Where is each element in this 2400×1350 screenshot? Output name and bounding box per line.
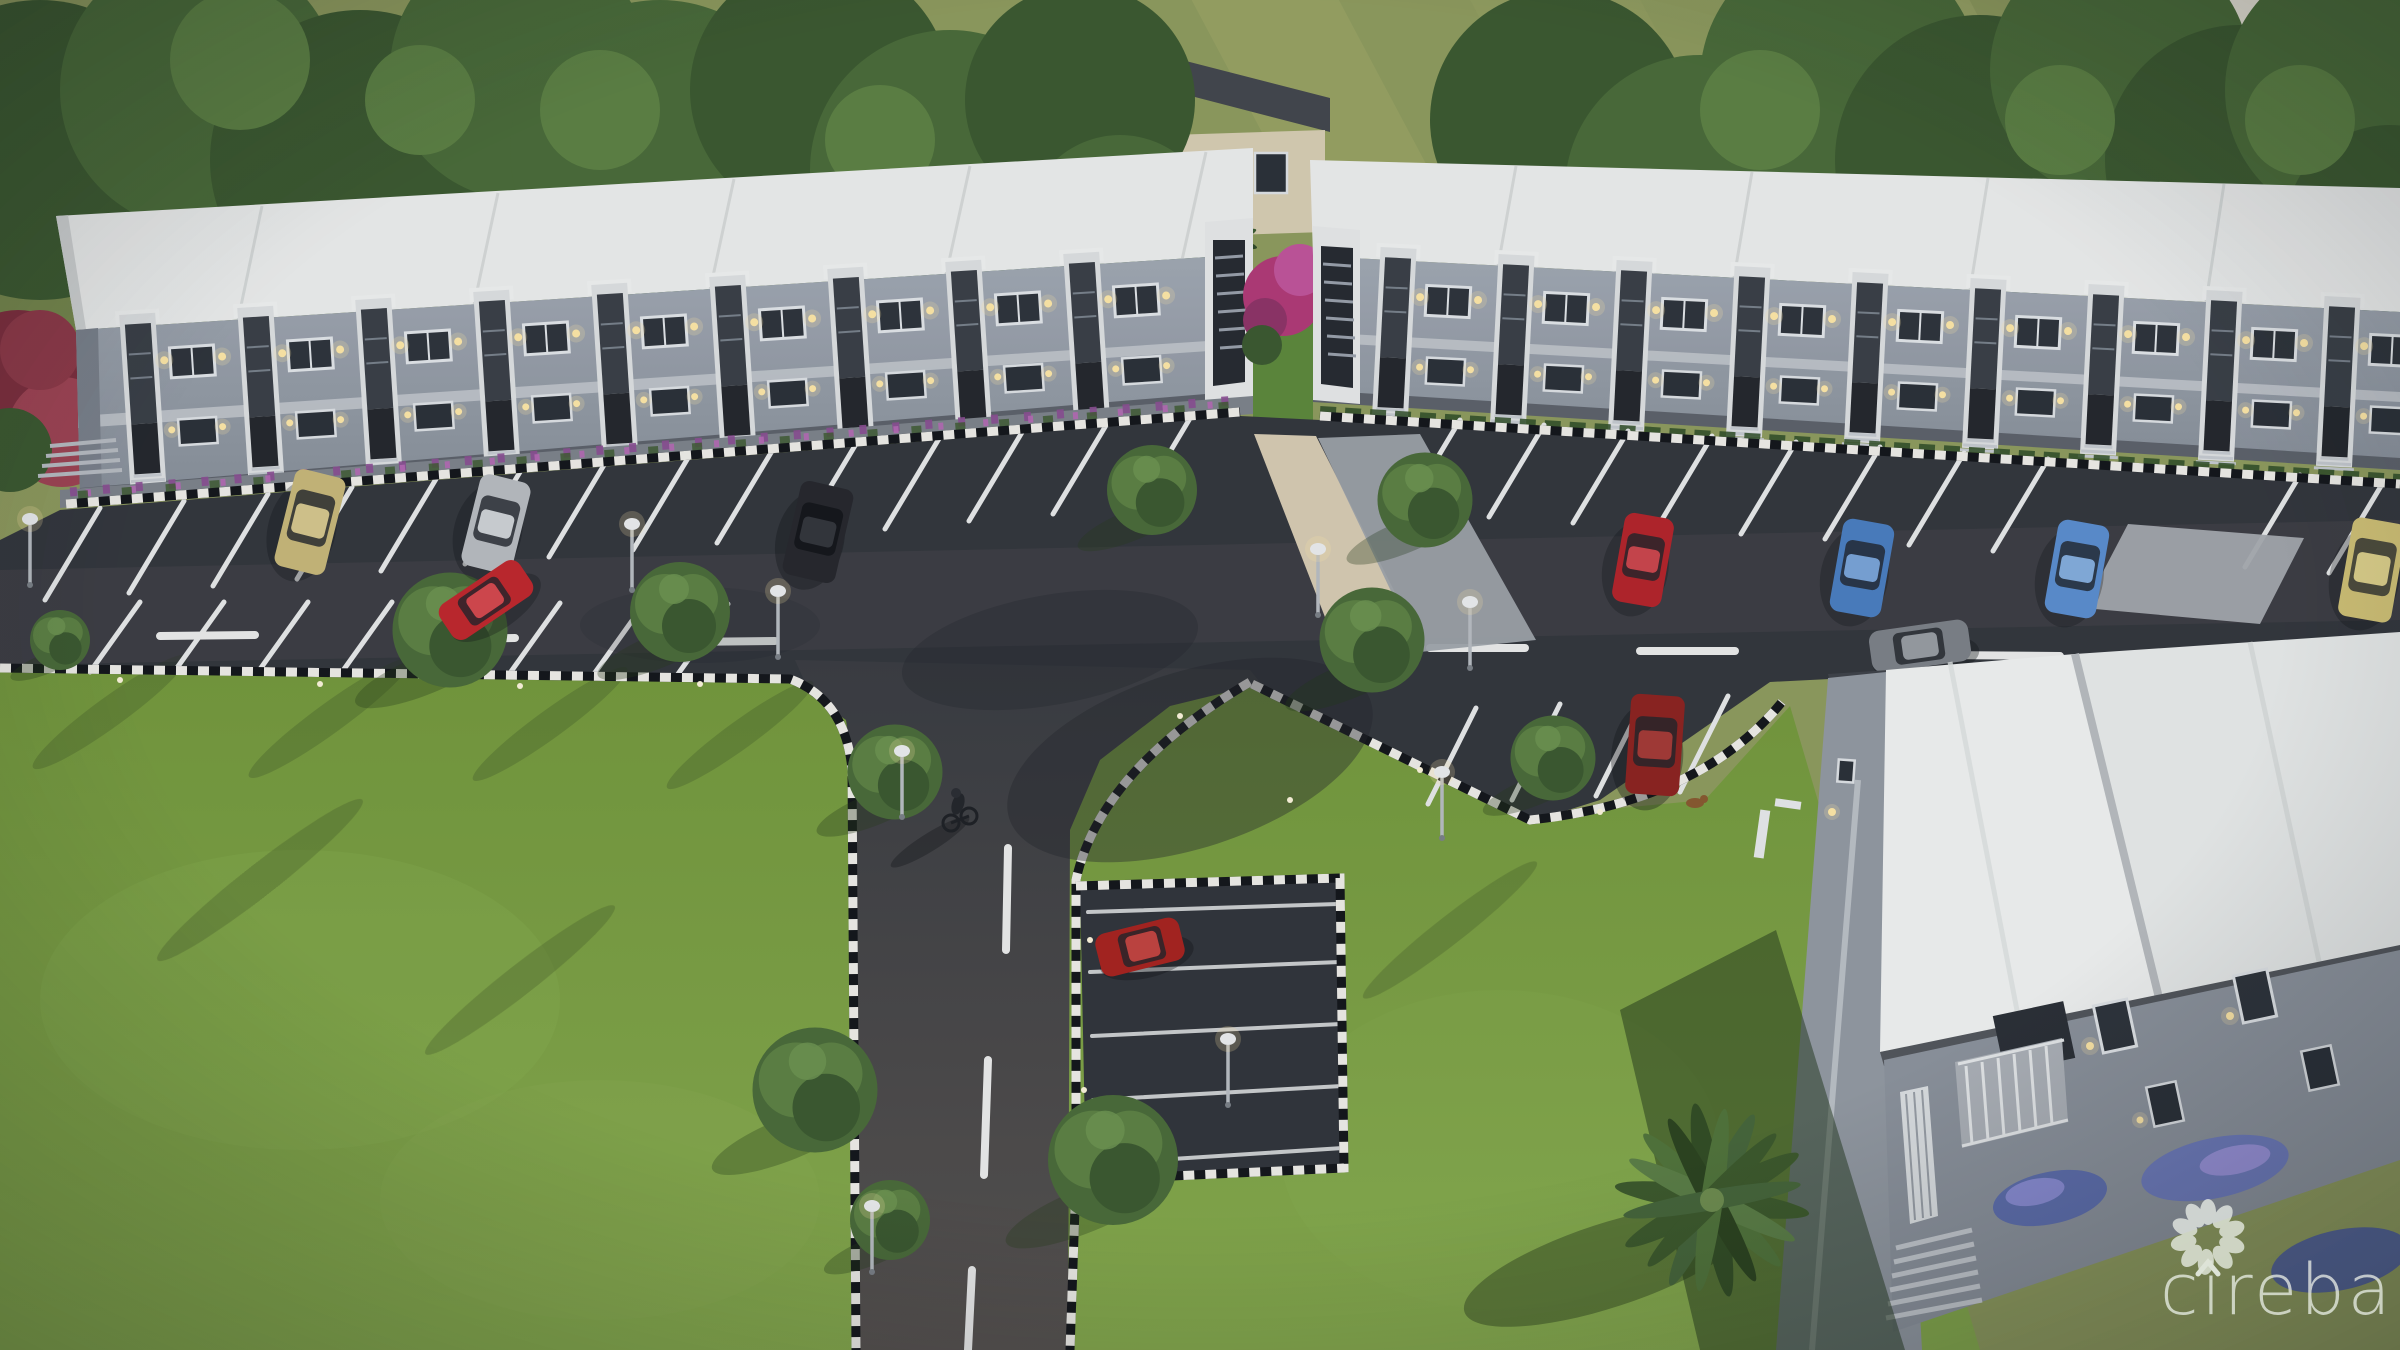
rendering-canvas: cireba	[0, 0, 2400, 1350]
cireba-wordmark: cireba	[2160, 1249, 2394, 1331]
vignette	[0, 0, 2400, 1350]
property-rendering: cireba	[0, 0, 2400, 1350]
